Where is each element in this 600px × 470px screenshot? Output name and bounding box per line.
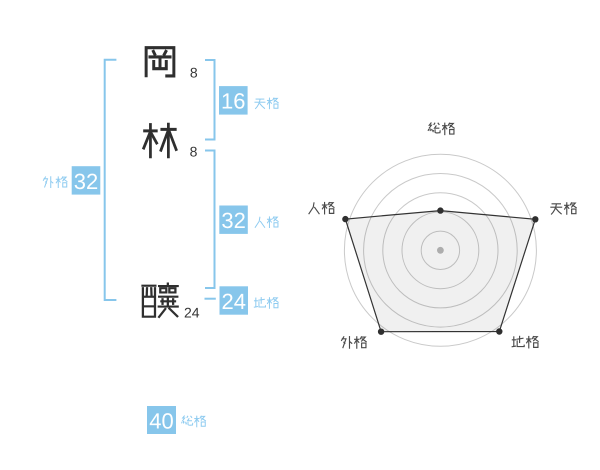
svg-text:16: 16 [221,89,245,114]
svg-text:8: 8 [190,143,198,159]
svg-text:40: 40 [149,408,173,433]
svg-text:32: 32 [74,169,98,194]
svg-text:24: 24 [221,289,245,314]
svg-text:24: 24 [184,305,200,321]
svg-text:8: 8 [190,65,198,81]
svg-text:32: 32 [221,208,245,233]
